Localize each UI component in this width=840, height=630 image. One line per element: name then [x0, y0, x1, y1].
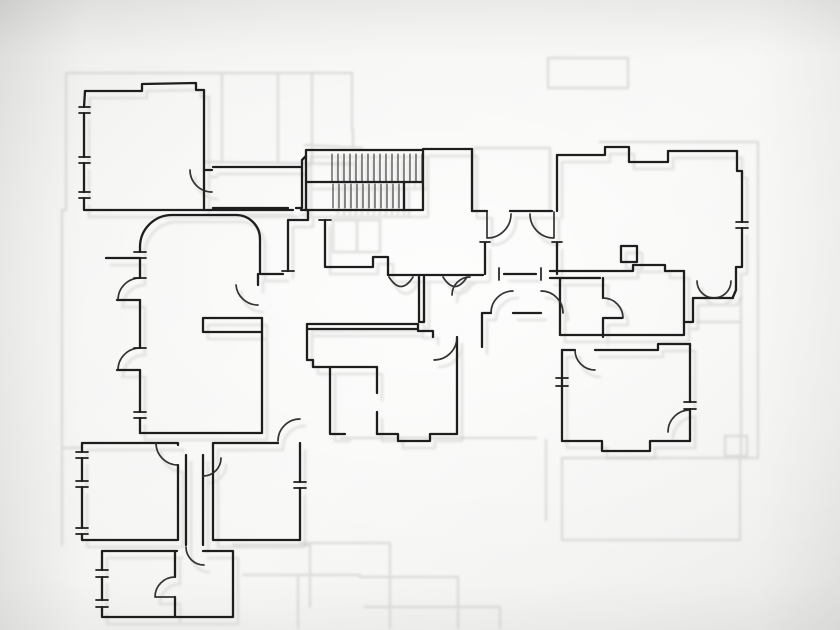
floorplan-canvas: [0, 0, 840, 630]
tracing-paper-sheet: [0, 0, 840, 630]
ink-walls: [82, 83, 742, 617]
door-arcs: [118, 170, 731, 597]
